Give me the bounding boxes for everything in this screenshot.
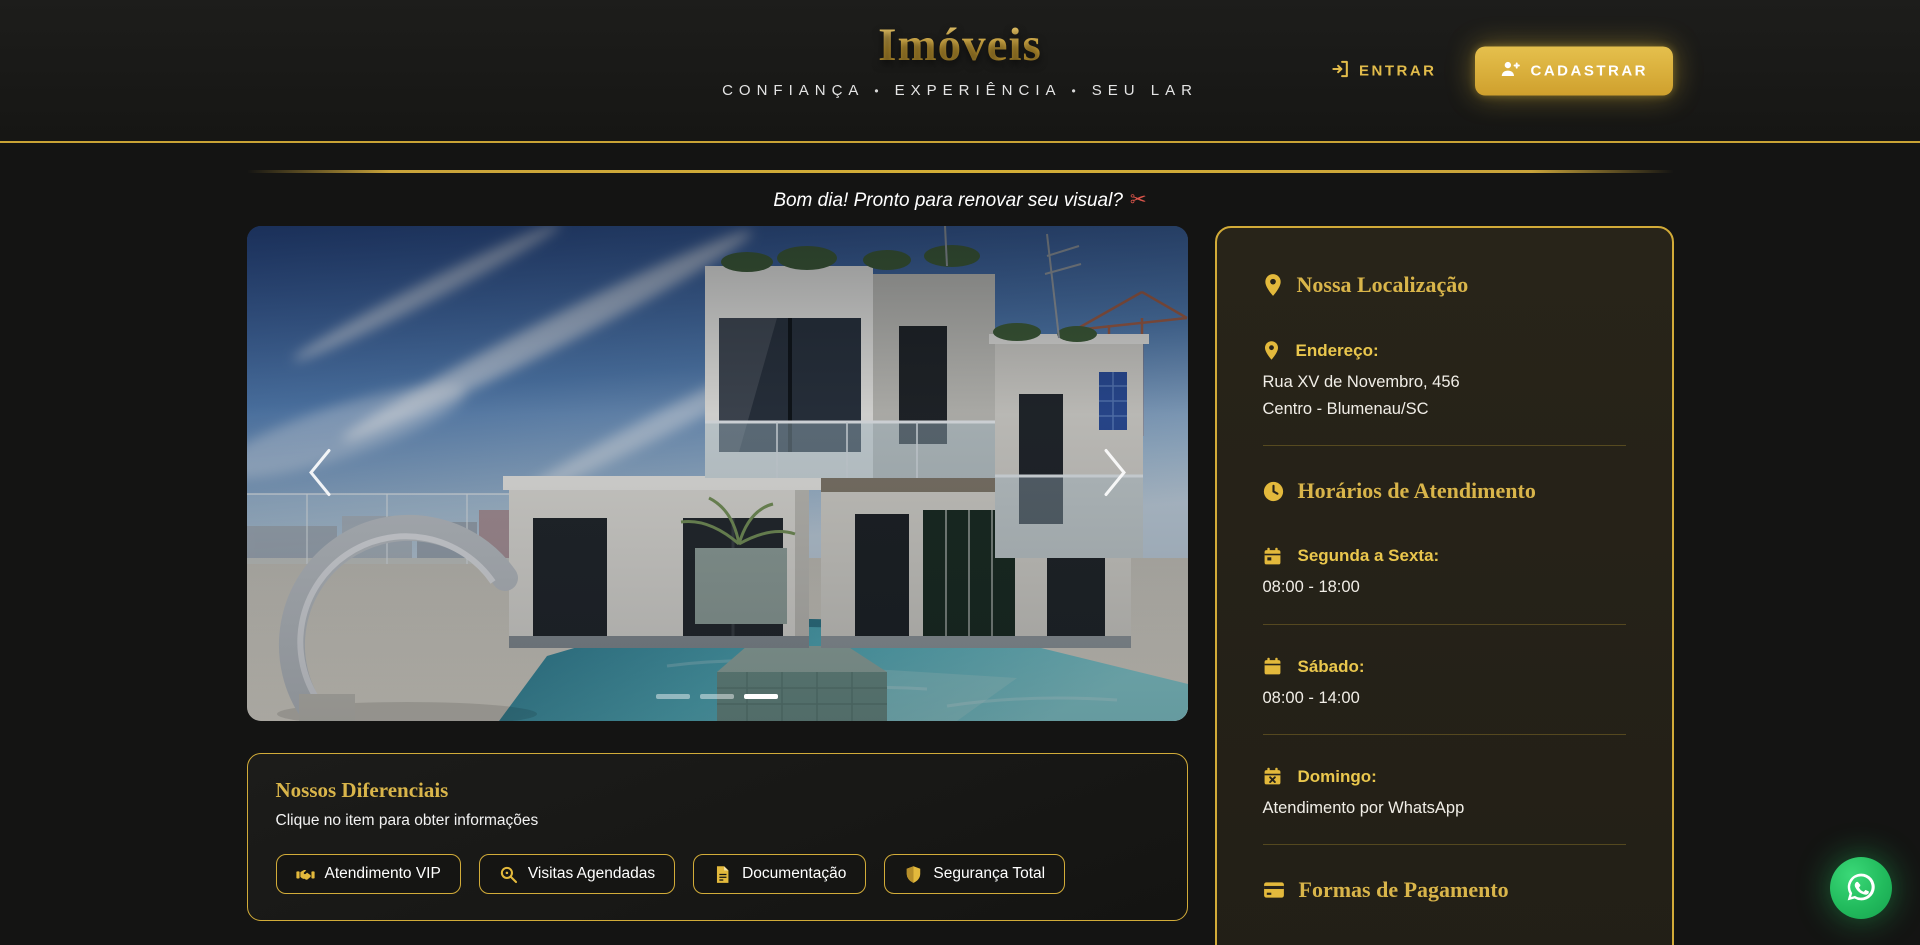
section-divider — [1263, 844, 1626, 845]
features-row: Atendimento VIP Visitas Agendadas — [276, 854, 1159, 894]
gold-divider — [247, 170, 1674, 173]
sunday-label-row: Domingo: — [1263, 767, 1626, 787]
magnifier-icon — [499, 865, 518, 884]
hours-heading: Horários de Atendimento — [1263, 478, 1626, 504]
feature-button-security[interactable]: Segurança Total — [884, 854, 1065, 894]
address-label-row: Endereço: — [1263, 340, 1626, 361]
saturday-label-row: Sábado: — [1263, 657, 1626, 677]
carousel-next-button[interactable] — [1094, 440, 1136, 507]
weekday-hours-item: Segunda a Sexta: 08:00 - 18:00 — [1263, 546, 1626, 601]
section-divider — [1263, 624, 1626, 625]
site-logo: Imóveis — [722, 18, 1198, 72]
payment-heading: Formas de Pagamento — [1263, 877, 1626, 903]
register-button[interactable]: CADASTRAR — [1475, 46, 1674, 95]
carousel-indicators — [656, 694, 778, 699]
chevron-right-icon — [1100, 486, 1130, 501]
shield-icon — [904, 865, 923, 884]
carousel-indicator-active[interactable] — [744, 694, 778, 699]
carousel-photo-villa — [247, 226, 1188, 721]
tagline: CONFIANÇA•EXPERIÊNCIA•SEU LAR — [722, 82, 1198, 99]
tagline-separator: • — [864, 84, 894, 98]
main-content: Bom dia! Pronto para renovar seu visual?… — [0, 170, 1920, 945]
saturday-hours-text: 08:00 - 14:00 — [1263, 685, 1626, 712]
logo-block: Imóveis CONFIANÇA•EXPERIÊNCIA•SEU LAR — [722, 18, 1198, 99]
whatsapp-icon — [1845, 871, 1877, 906]
scissors-icon: ✂ — [1130, 189, 1147, 211]
section-divider — [1263, 734, 1626, 735]
feature-label: Segurança Total — [933, 865, 1045, 883]
feature-button-vip[interactable]: Atendimento VIP — [276, 854, 461, 894]
greeting-message: Bom dia! Pronto para renovar seu visual?… — [247, 187, 1674, 212]
calendar-x-icon — [1263, 767, 1282, 786]
weekday-label-row: Segunda a Sexta: — [1263, 546, 1626, 566]
map-pin-icon — [1263, 273, 1283, 297]
user-plus-icon — [1500, 58, 1521, 83]
feature-button-visits[interactable]: Visitas Agendadas — [479, 854, 675, 894]
section-divider — [1263, 445, 1626, 446]
carousel-indicator[interactable] — [700, 694, 734, 699]
sign-in-icon — [1331, 59, 1350, 82]
login-label: ENTRAR — [1359, 62, 1437, 79]
photo-carousel — [247, 226, 1188, 721]
credit-card-icon — [1263, 881, 1285, 899]
handshake-icon — [296, 865, 315, 884]
features-title: Nossos Diferenciais — [276, 778, 1159, 803]
sunday-hours-item: Domingo: Atendimento por WhatsApp — [1263, 767, 1626, 822]
saturday-hours-item: Sábado: 08:00 - 14:00 — [1263, 657, 1626, 712]
features-card: Nossos Diferenciais Clique no item para … — [247, 753, 1188, 921]
register-label: CADASTRAR — [1531, 62, 1649, 79]
carousel-prev-button[interactable] — [299, 440, 341, 507]
weekday-hours-text: 08:00 - 18:00 — [1263, 574, 1626, 601]
address-text: Rua XV de Novembro, 456 Centro - Blumena… — [1263, 369, 1626, 423]
document-icon — [713, 865, 732, 884]
calendar-icon — [1263, 657, 1282, 676]
calendar-icon — [1263, 547, 1282, 566]
features-subtitle: Clique no item para obter informações — [276, 812, 1159, 830]
site-header: Imóveis CONFIANÇA•EXPERIÊNCIA•SEU LAR EN… — [0, 0, 1920, 143]
location-heading: Nossa Localização — [1263, 272, 1626, 298]
carousel-indicator[interactable] — [656, 694, 690, 699]
address-item: Endereço: Rua XV de Novembro, 456 Centro… — [1263, 340, 1626, 423]
feature-label: Visitas Agendadas — [528, 865, 655, 883]
whatsapp-fab[interactable] — [1830, 857, 1892, 919]
map-pin-icon — [1263, 340, 1280, 361]
clock-icon — [1263, 481, 1284, 502]
feature-label: Documentação — [742, 865, 846, 883]
tagline-separator: • — [1062, 84, 1092, 98]
left-column: Nossos Diferenciais Clique no item para … — [247, 226, 1188, 921]
sunday-hours-text: Atendimento por WhatsApp — [1263, 795, 1626, 822]
feature-button-docs[interactable]: Documentação — [693, 854, 866, 894]
location-info-card: Nossa Localização Endereço: Rua XV de No… — [1215, 226, 1674, 945]
chevron-left-icon — [305, 486, 335, 501]
feature-label: Atendimento VIP — [325, 865, 441, 883]
auth-nav: ENTRAR CADASTRAR — [1331, 46, 1673, 95]
login-button[interactable]: ENTRAR — [1331, 59, 1437, 82]
